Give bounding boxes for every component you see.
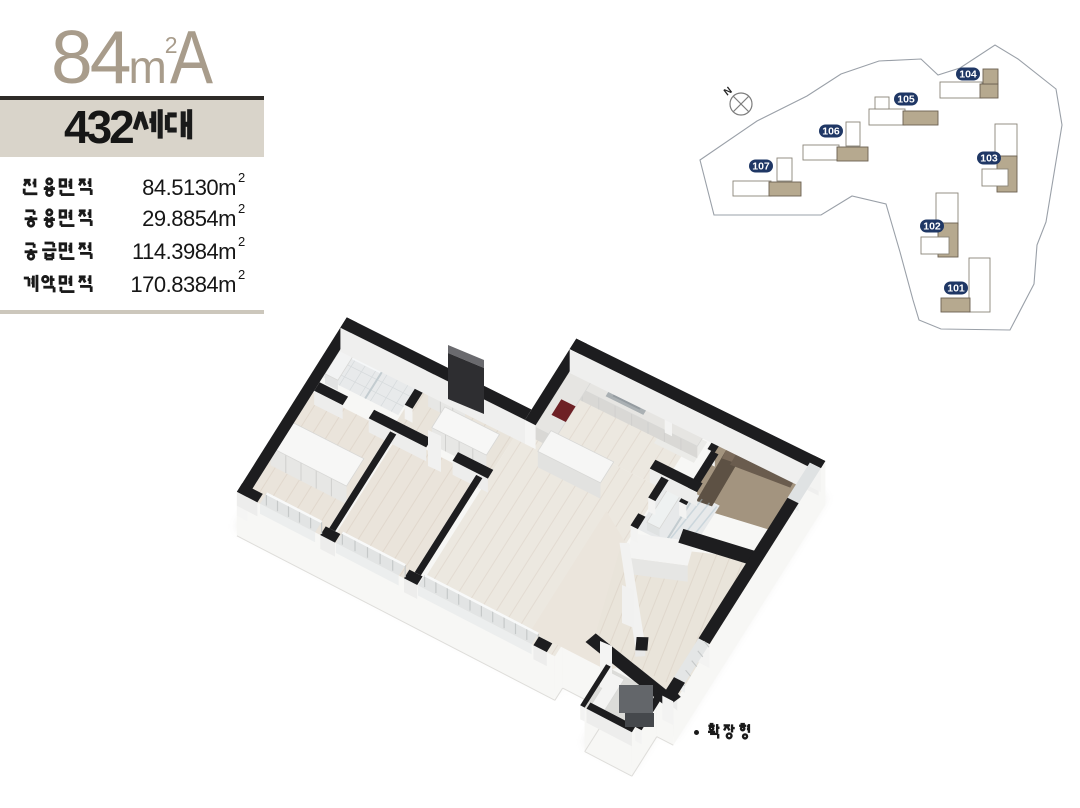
svg-text:101: 101: [947, 283, 965, 295]
svg-text:107: 107: [752, 161, 770, 173]
svg-text:103: 103: [980, 153, 998, 165]
svg-text:106: 106: [822, 126, 840, 138]
svg-text:102: 102: [923, 221, 941, 233]
svg-text:105: 105: [897, 94, 915, 106]
svg-text:104: 104: [959, 69, 977, 81]
